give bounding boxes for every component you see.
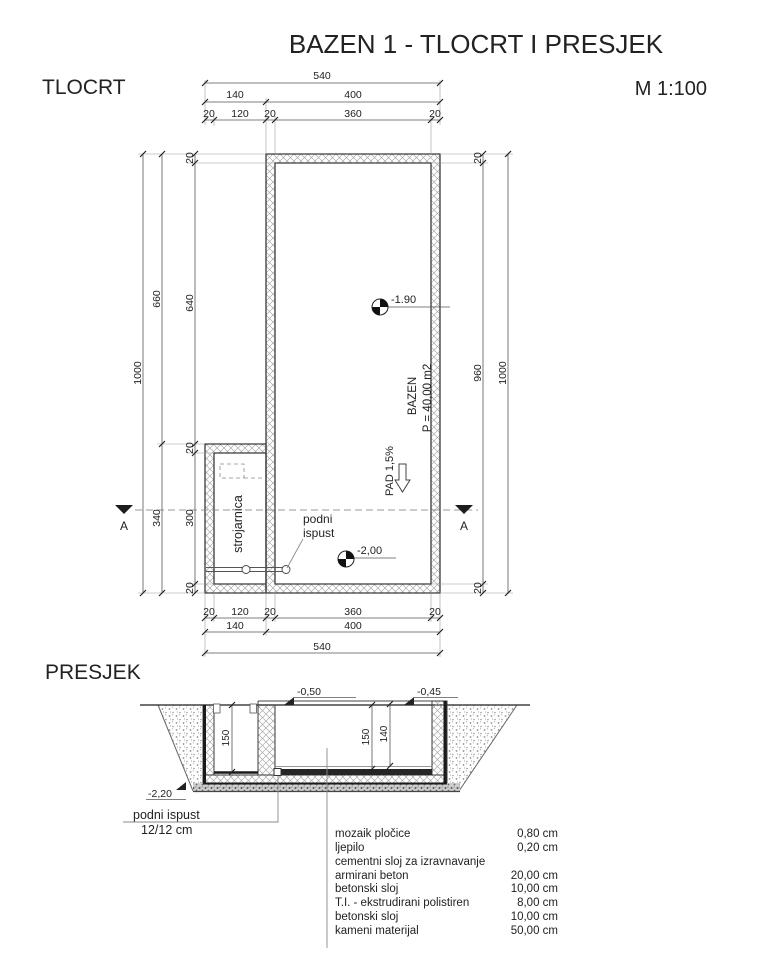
- floor-plan: A A strojarnica BAZEN P = 40,00 m2 PAD 1…: [115, 70, 513, 657]
- dim-label: 20: [203, 108, 215, 120]
- dim-label: 360: [344, 606, 362, 618]
- section-marker-left: A: [120, 519, 128, 533]
- level-value: -0,50: [297, 686, 321, 698]
- floor-slab: [203, 775, 447, 783]
- drawing-canvas: BAZEN 1 - TLOCRT I PRESJEK TLOCRT M 1:10…: [0, 0, 762, 960]
- wall-notch: [250, 704, 257, 713]
- dim-label: 140: [379, 725, 390, 742]
- level-basin-value: -1.90: [391, 294, 416, 306]
- machine-room-label: strojarnica: [231, 495, 245, 553]
- earth-left: [158, 705, 203, 791]
- dim-label: 20: [184, 442, 196, 454]
- section-arrow-right: [455, 505, 473, 514]
- drain-note: podni ispust: [133, 808, 200, 822]
- level-drain-value: -2,00: [357, 545, 382, 557]
- level-value: -0,45: [417, 686, 441, 698]
- material-value: 10,00 cm: [511, 883, 558, 895]
- material-name: armirani beton: [335, 870, 409, 882]
- dim-label: 400: [344, 620, 362, 632]
- material-value: 0,20 cm: [517, 842, 558, 854]
- material-value: 50,00 cm: [511, 925, 558, 937]
- dim-label: 20: [203, 606, 215, 618]
- dim-label: 1000: [497, 361, 509, 385]
- dim-label: 20: [264, 108, 276, 120]
- dim-ticks: [140, 80, 511, 656]
- material-value: 20,00 cm: [511, 870, 558, 882]
- scale-label: M 1:100: [635, 78, 707, 100]
- slope-label: PAD 1,5%: [384, 446, 396, 496]
- slope-arrow-icon: [395, 464, 410, 492]
- drain-note: 12/12 cm: [141, 823, 192, 837]
- sheet-title: BAZEN 1 - TLOCRT I PRESJEK: [289, 29, 664, 59]
- level-value: -2,20: [148, 788, 172, 800]
- extension-lines: [138, 80, 513, 657]
- dim-label: 660: [151, 290, 163, 308]
- material-value: 0,80 cm: [517, 828, 558, 840]
- pool-floor-layers: [275, 769, 432, 775]
- pool-name-label: BAZEN: [407, 377, 419, 415]
- material-name: mozaik pločice: [335, 828, 410, 840]
- section-arrow-left: [115, 505, 133, 514]
- dim-label: 20: [472, 582, 484, 594]
- dim-label: 120: [231, 108, 249, 120]
- pipe-valve: [242, 566, 250, 574]
- material-name: T.I. - ekstrudirani polistiren: [335, 897, 469, 909]
- level-flag-top-right: -0,45: [404, 686, 458, 705]
- dim-label: 20: [264, 606, 276, 618]
- floor-drain-label: ispust: [303, 526, 335, 540]
- dim-label: 20: [429, 606, 441, 618]
- floor-drain-box: [274, 769, 281, 776]
- dim-label: 120: [231, 606, 249, 618]
- pool-walls: [266, 154, 440, 593]
- cross-section: PRESJEK 1: [45, 661, 558, 948]
- material-name: cementni sloj za izravnavanje: [335, 856, 485, 868]
- dim-label: 20: [184, 582, 196, 594]
- wall-middle: [258, 705, 275, 775]
- dim-label: 140: [226, 89, 244, 101]
- material-value: 10,00 cm: [511, 911, 558, 923]
- section-marker-right: A: [460, 519, 468, 533]
- plan-title: TLOCRT: [42, 76, 126, 99]
- wall-notch: [214, 704, 221, 713]
- dim-label: 360: [344, 108, 362, 120]
- dim-label: 150: [221, 729, 232, 746]
- dim-label: 400: [344, 89, 362, 101]
- dim-label: 20: [472, 152, 484, 164]
- materials-list: mozaik pločice 0,80 cm ljepilo 0,20 cm c…: [335, 828, 558, 937]
- dim-label: 300: [184, 509, 196, 527]
- dim-label: 540: [313, 641, 331, 653]
- dim-label: 150: [361, 728, 372, 745]
- dim-label: 640: [184, 294, 196, 312]
- dim-label: 540: [313, 70, 331, 82]
- drawing-sheet: BAZEN 1 - TLOCRT I PRESJEK TLOCRT M 1:10…: [0, 0, 762, 960]
- dim-label: 20: [429, 108, 441, 120]
- level-marker-drain: -2,00: [338, 545, 396, 567]
- level-flag-bottom: -2,20: [146, 782, 186, 800]
- dim-label: 340: [151, 509, 163, 527]
- floor-drain-symbol: [282, 566, 290, 574]
- material-value: 8,00 cm: [517, 897, 558, 909]
- dim-label: 140: [226, 620, 244, 632]
- dim-label: 20: [184, 152, 196, 164]
- material-name: kameni materijal: [335, 925, 419, 937]
- pool-area-label: P = 40,00 m2: [422, 364, 434, 433]
- material-name: betonski sloj: [335, 883, 398, 895]
- level-flag-top-left: -0,50: [284, 686, 356, 705]
- section-title: PRESJEK: [45, 661, 141, 684]
- floor-drain-leader: [287, 539, 303, 568]
- dim-label: 960: [472, 364, 484, 382]
- floor-drain-label: podni: [303, 512, 332, 526]
- equipment-outline: [220, 464, 244, 478]
- material-name: ljepilo: [335, 842, 364, 854]
- earth-right: [447, 705, 517, 791]
- material-name: betonski sloj: [335, 911, 398, 923]
- dim-label: 1000: [132, 361, 144, 385]
